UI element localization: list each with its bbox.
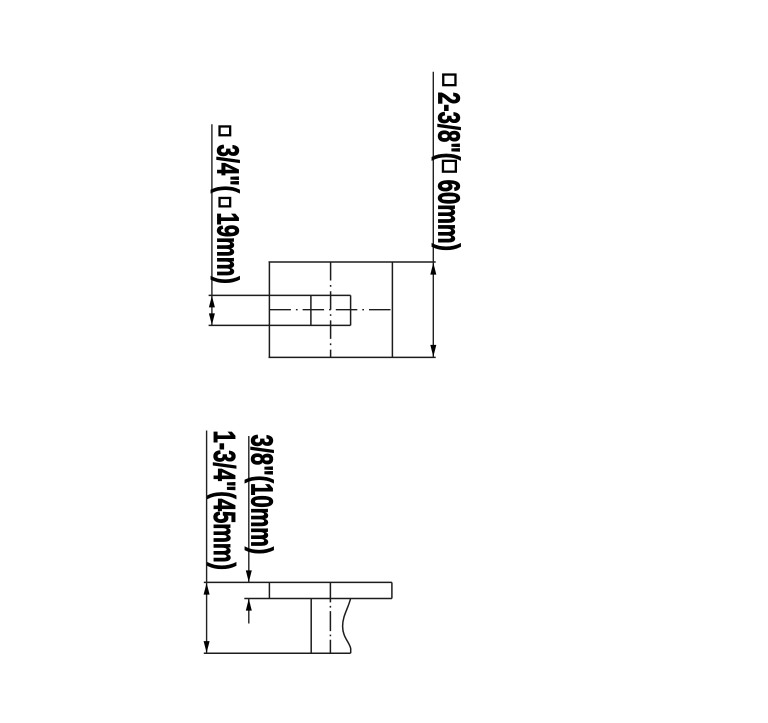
svg-text:1-3/4"(45mm): 1-3/4"(45mm) — [207, 431, 241, 570]
svg-text:□ 3/4"(□ 19mm): □ 3/4"(□ 19mm) — [210, 125, 244, 284]
svg-text:3/8"(10mm): 3/8"(10mm) — [245, 435, 279, 555]
